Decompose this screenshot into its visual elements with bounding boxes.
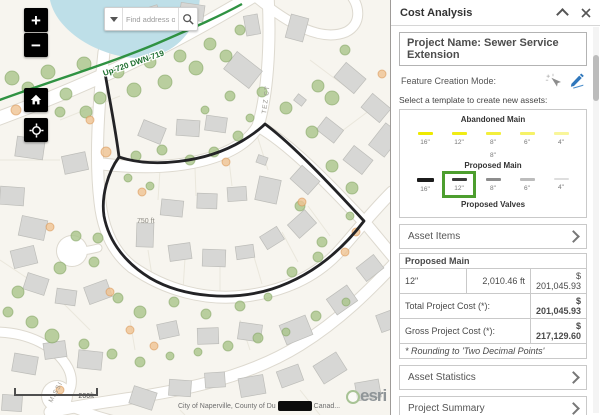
search-source-dropdown[interactable]	[105, 8, 123, 30]
panel-scrollbar[interactable]	[593, 27, 599, 413]
template-proposed-6[interactable]: 6"	[510, 171, 544, 198]
cost-analysis-panel: Cost Analysis Project Name: Sewer Servic…	[390, 0, 600, 415]
home-button[interactable]	[24, 88, 48, 112]
group-title-abandoned: Abandoned Main	[400, 115, 586, 124]
pencil-edit-icon[interactable]	[568, 72, 585, 89]
asset-items-table: Proposed Main 12" 2,010.46 ft $ 201,045.…	[399, 253, 587, 359]
plus-icon: +	[31, 12, 41, 29]
feature-mode-label: Feature Creation Mode:	[401, 76, 496, 86]
template-picker: Abandoned Main 16" 12" 8" 6" 4" 8" Propo…	[399, 109, 587, 218]
panel-title: Cost Analysis	[400, 7, 558, 19]
asset-length-cell: 2,010.46 ft	[466, 269, 530, 294]
line-symbol	[486, 178, 501, 181]
asset-statistics-label: Asset Statistics	[408, 372, 476, 383]
section-asset-statistics[interactable]: Asset Statistics	[399, 365, 587, 390]
line-symbol	[417, 178, 434, 182]
total-cost-label: Total Project Cost (*):	[400, 294, 531, 319]
template-proposed-8[interactable]: 8"	[476, 171, 510, 198]
chevron-right-icon	[567, 371, 580, 384]
chevron-right-icon	[567, 402, 580, 415]
asset-cost-cell: $ 201,045.93	[530, 269, 586, 294]
scale-label: 200ft	[78, 393, 94, 400]
table-row: 12" 2,010.46 ft $ 201,045.93	[400, 269, 587, 294]
table-row: Gross Project Cost (*): $ 217,129.60	[400, 319, 587, 344]
abandoned-main-row: 16" 12" 8" 6" 4"	[400, 125, 586, 151]
esri-globe-icon	[346, 390, 360, 404]
scale-bar: 200ft	[14, 388, 98, 396]
template-abandoned-16[interactable]: 16"	[408, 125, 442, 151]
line-symbol	[418, 132, 433, 135]
template-proposed-16[interactable]: 16"	[408, 171, 442, 198]
chevron-right-icon	[567, 230, 580, 243]
template-abandoned-12[interactable]: 12"	[442, 125, 476, 151]
panel-content: Project Name: Sewer Service Extension Fe…	[391, 26, 600, 415]
line-symbol	[520, 132, 535, 135]
esri-logo: esri	[346, 389, 386, 404]
group-title-valves: Proposed Valves	[400, 200, 586, 209]
template-abandoned-6[interactable]: 6"	[510, 125, 544, 151]
zoom-out-button[interactable]: −	[24, 33, 48, 57]
group-title-proposed: Proposed Main	[400, 161, 586, 170]
feature-creation-mode-row: Feature Creation Mode:	[399, 66, 587, 94]
esri-wordmark: esri	[360, 389, 386, 403]
locate-button[interactable]	[24, 118, 48, 142]
line-symbol	[520, 178, 535, 181]
line-symbol	[452, 132, 467, 135]
minus-icon: −	[31, 37, 41, 54]
asset-size-cell: 12"	[400, 269, 467, 294]
search-icon	[182, 13, 194, 25]
template-abandoned-8[interactable]: 8"	[476, 125, 510, 151]
total-cost-value: $ 201,045.93	[530, 294, 586, 319]
redaction-box	[278, 401, 312, 411]
template-proposed-12[interactable]: 12"	[442, 171, 476, 198]
gross-cost-label: Gross Project Cost (*):	[400, 319, 531, 344]
map-canvas[interactable]: Up-720 DWN-719TEZ CTMISSI750 ft	[0, 0, 390, 415]
section-project-summary[interactable]: Project Summary	[399, 396, 587, 415]
search-input[interactable]	[123, 8, 178, 30]
asset-items-label: Asset Items	[408, 231, 460, 242]
section-asset-items[interactable]: Asset Items	[399, 224, 587, 249]
panel-header: Cost Analysis	[391, 0, 600, 26]
home-icon	[29, 93, 43, 107]
rounding-footnote: * Rounding to 'Two Decimal Points'	[400, 344, 587, 359]
attribution-text-right: Canad...	[314, 403, 340, 410]
gross-cost-value: $ 217,129.60	[530, 319, 586, 344]
locate-icon	[29, 123, 44, 138]
template-abandoned-4[interactable]: 4"	[544, 125, 578, 151]
table-group-header: Proposed Main	[400, 254, 587, 269]
project-summary-label: Project Summary	[408, 403, 485, 414]
line-symbol	[452, 178, 467, 181]
attribution-text-left: City of Naperville, County of Du	[178, 403, 276, 410]
table-row: Total Project Cost (*): $ 201,045.93	[400, 294, 587, 319]
collapse-icon[interactable]	[556, 8, 569, 21]
map[interactable]: Up-720 DWN-719TEZ CTMISSI750 ft + − 200f…	[0, 0, 390, 415]
chevron-down-icon	[110, 17, 118, 22]
zoom-in-button[interactable]: +	[24, 8, 48, 32]
line-symbol	[554, 132, 569, 135]
template-proposed-4[interactable]: 4"	[544, 171, 578, 198]
magic-wand-icon[interactable]	[545, 73, 561, 89]
project-name-box: Project Name: Sewer Service Extension	[399, 32, 587, 66]
proposed-main-row: 16" 12" 8" 6" 4"	[400, 171, 586, 198]
search-button[interactable]	[178, 8, 197, 30]
line-symbol	[486, 132, 501, 135]
search-box[interactable]	[104, 7, 198, 31]
scrollbar-thumb[interactable]	[593, 55, 599, 101]
close-icon[interactable]	[581, 8, 591, 18]
map-attribution: City of Naperville, County of Du Canad..…	[178, 401, 340, 411]
svg-text:750 ft: 750 ft	[137, 218, 155, 225]
template-overflow-label[interactable]: 8"	[400, 152, 586, 159]
line-symbol	[554, 178, 569, 180]
template-instruction: Select a template to create new assets:	[399, 95, 587, 105]
